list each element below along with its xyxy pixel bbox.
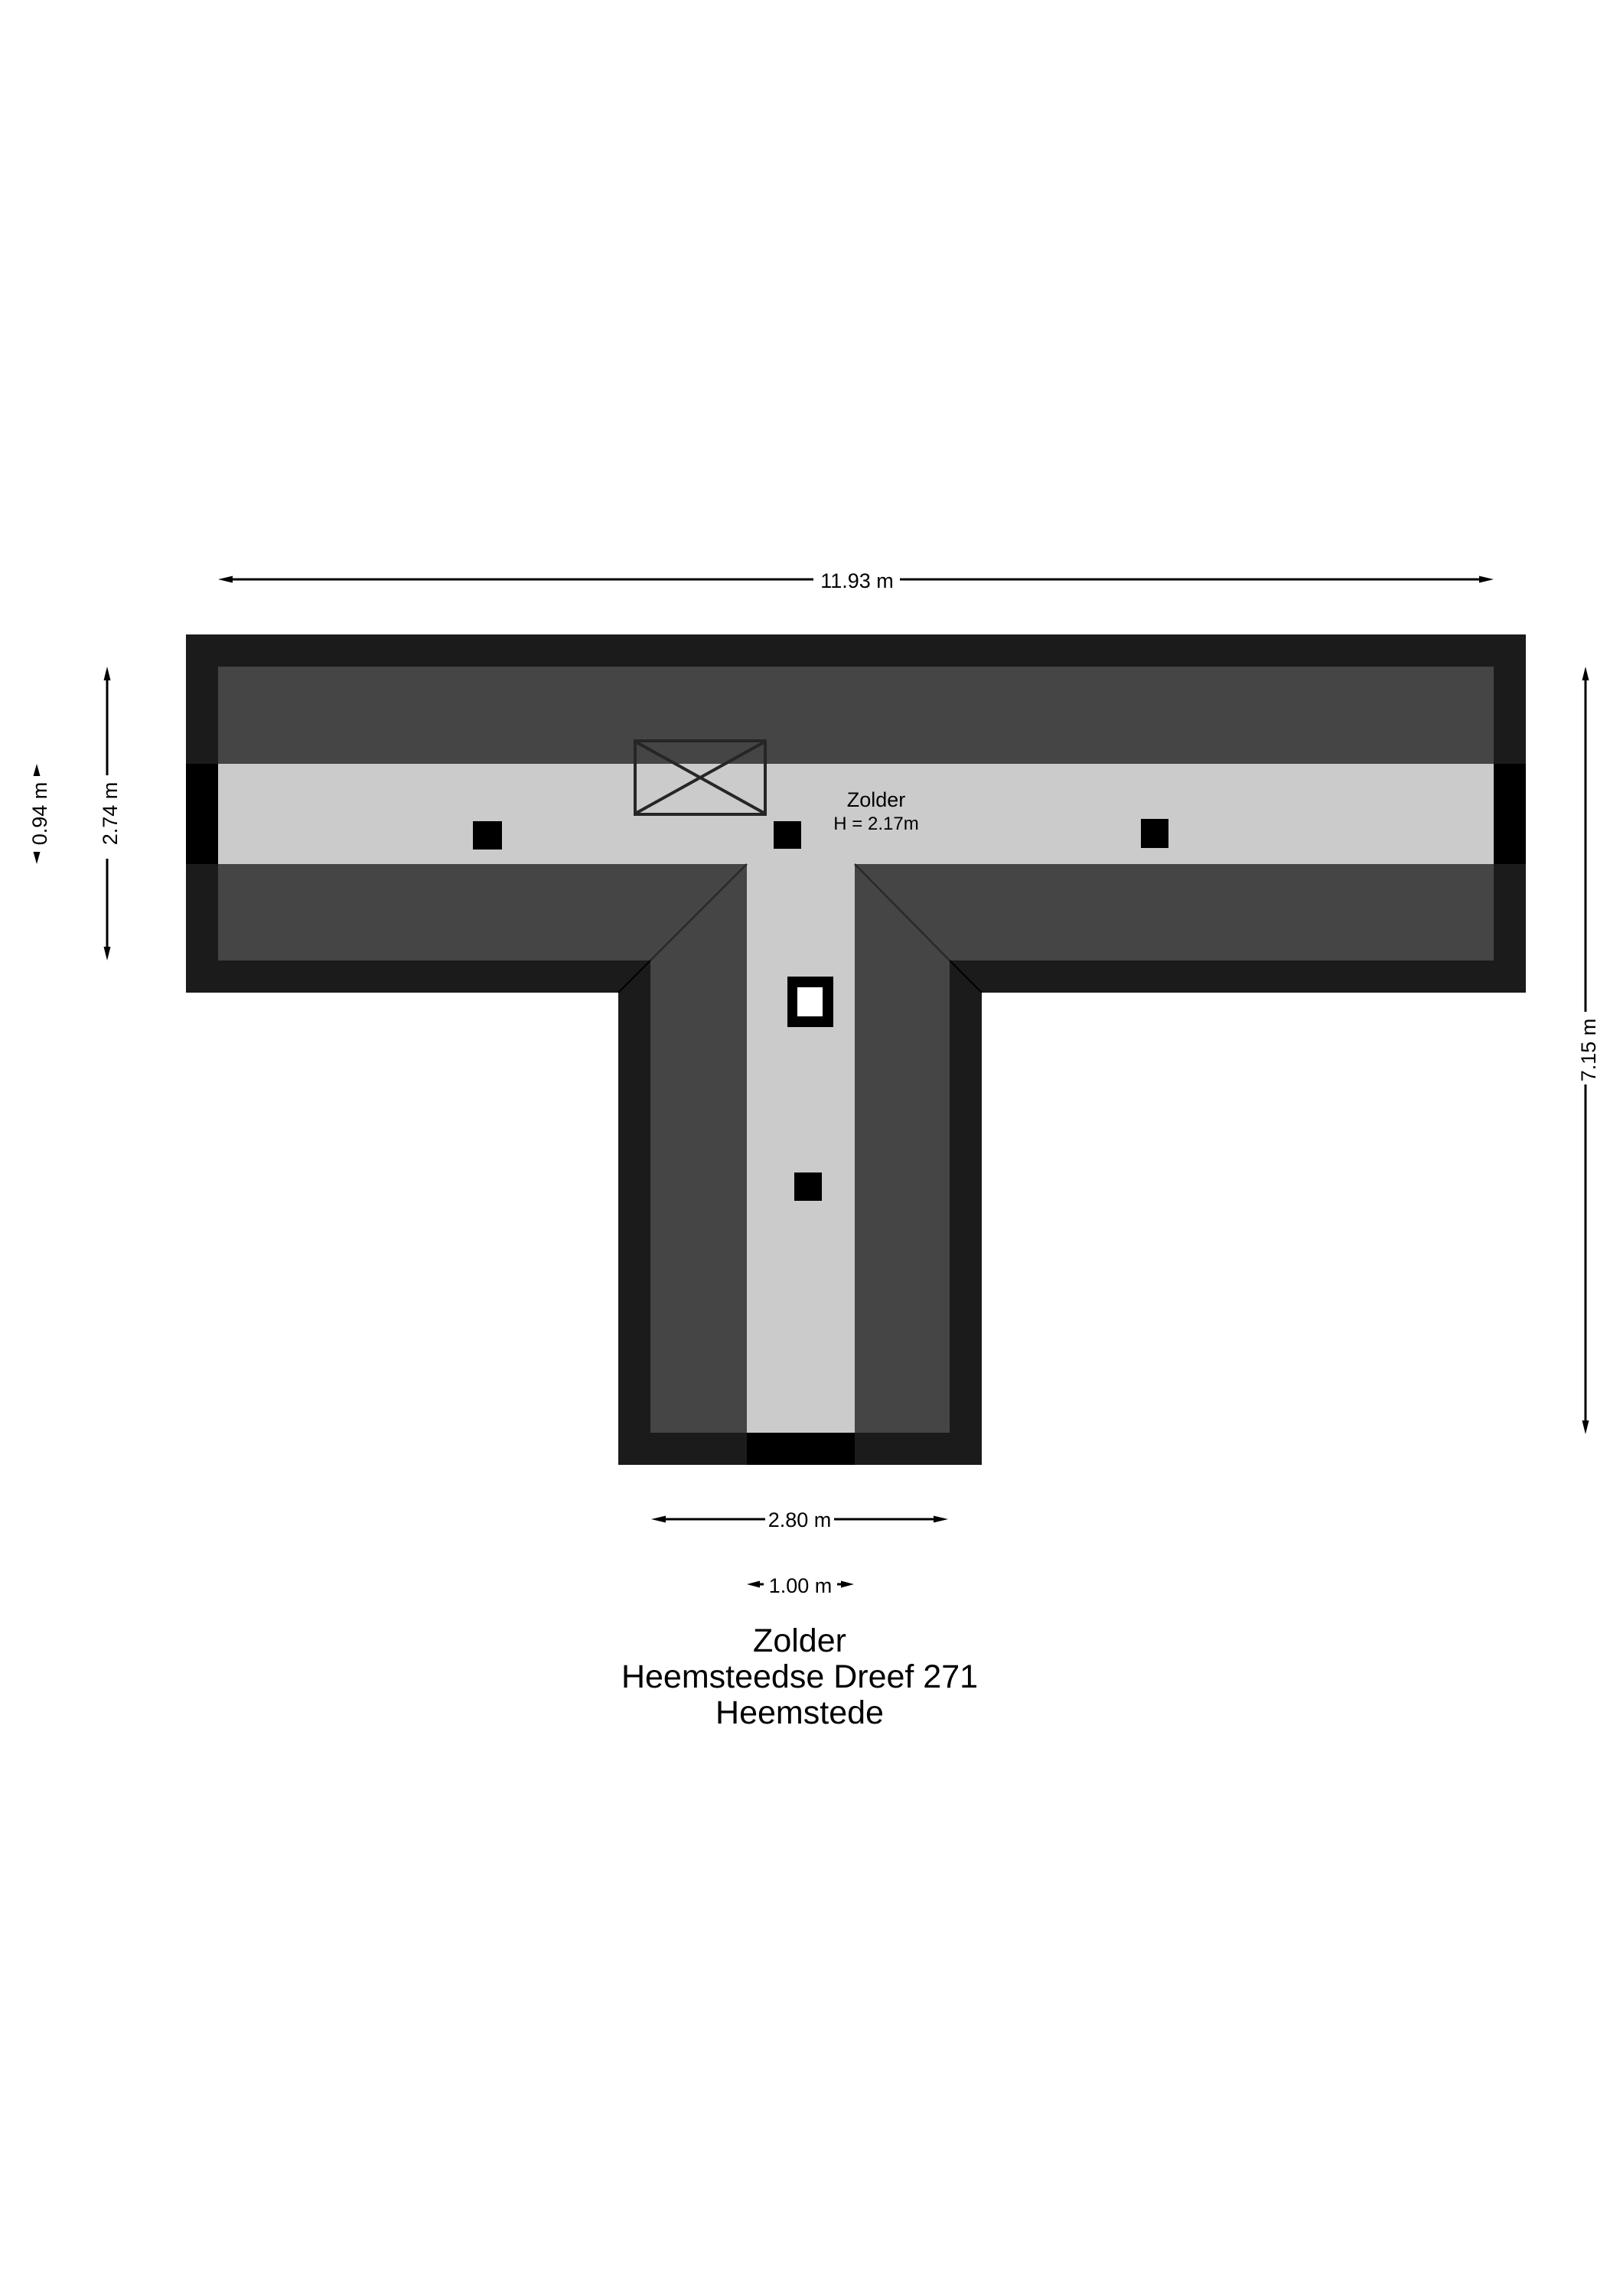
svg-text:Zolder: Zolder bbox=[847, 788, 906, 811]
svg-text:2.80 m: 2.80 m bbox=[768, 1508, 832, 1531]
svg-text:1.00 m: 1.00 m bbox=[769, 1574, 833, 1597]
svg-text:7.15 m: 7.15 m bbox=[1577, 1019, 1600, 1082]
svg-text:Zolder: Zolder bbox=[753, 1623, 846, 1659]
svg-text:11.93 m: 11.93 m bbox=[820, 569, 894, 592]
svg-text:0.94 m: 0.94 m bbox=[28, 782, 51, 846]
svg-text:H = 2.17m: H = 2.17m bbox=[833, 814, 918, 834]
svg-text:Heemsteedse Dreef 271: Heemsteedse Dreef 271 bbox=[621, 1658, 978, 1695]
svg-text:2.74 m: 2.74 m bbox=[99, 782, 122, 846]
svg-text:Heemstede: Heemstede bbox=[715, 1694, 884, 1731]
